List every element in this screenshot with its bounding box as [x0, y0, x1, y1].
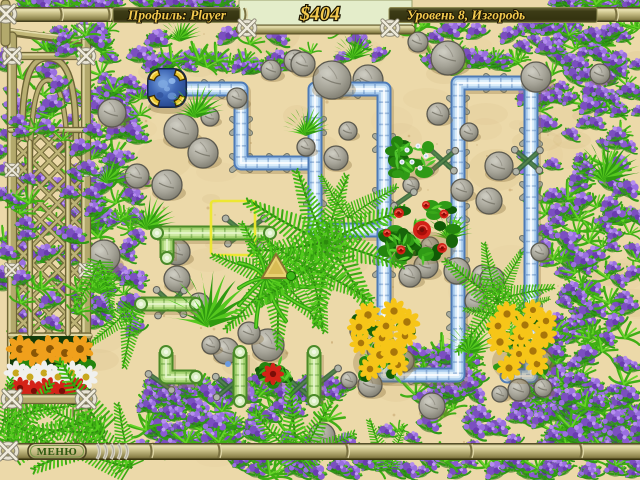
svg-text:Уровень 8, Изгородь: Уровень 8, Изгородь [407, 8, 525, 23]
svg-text:Профиль: Player: Профиль: Player [127, 8, 227, 23]
svg-text:$404: $404 [299, 3, 340, 25]
svg-text:МЕНЮ: МЕНЮ [37, 446, 78, 458]
